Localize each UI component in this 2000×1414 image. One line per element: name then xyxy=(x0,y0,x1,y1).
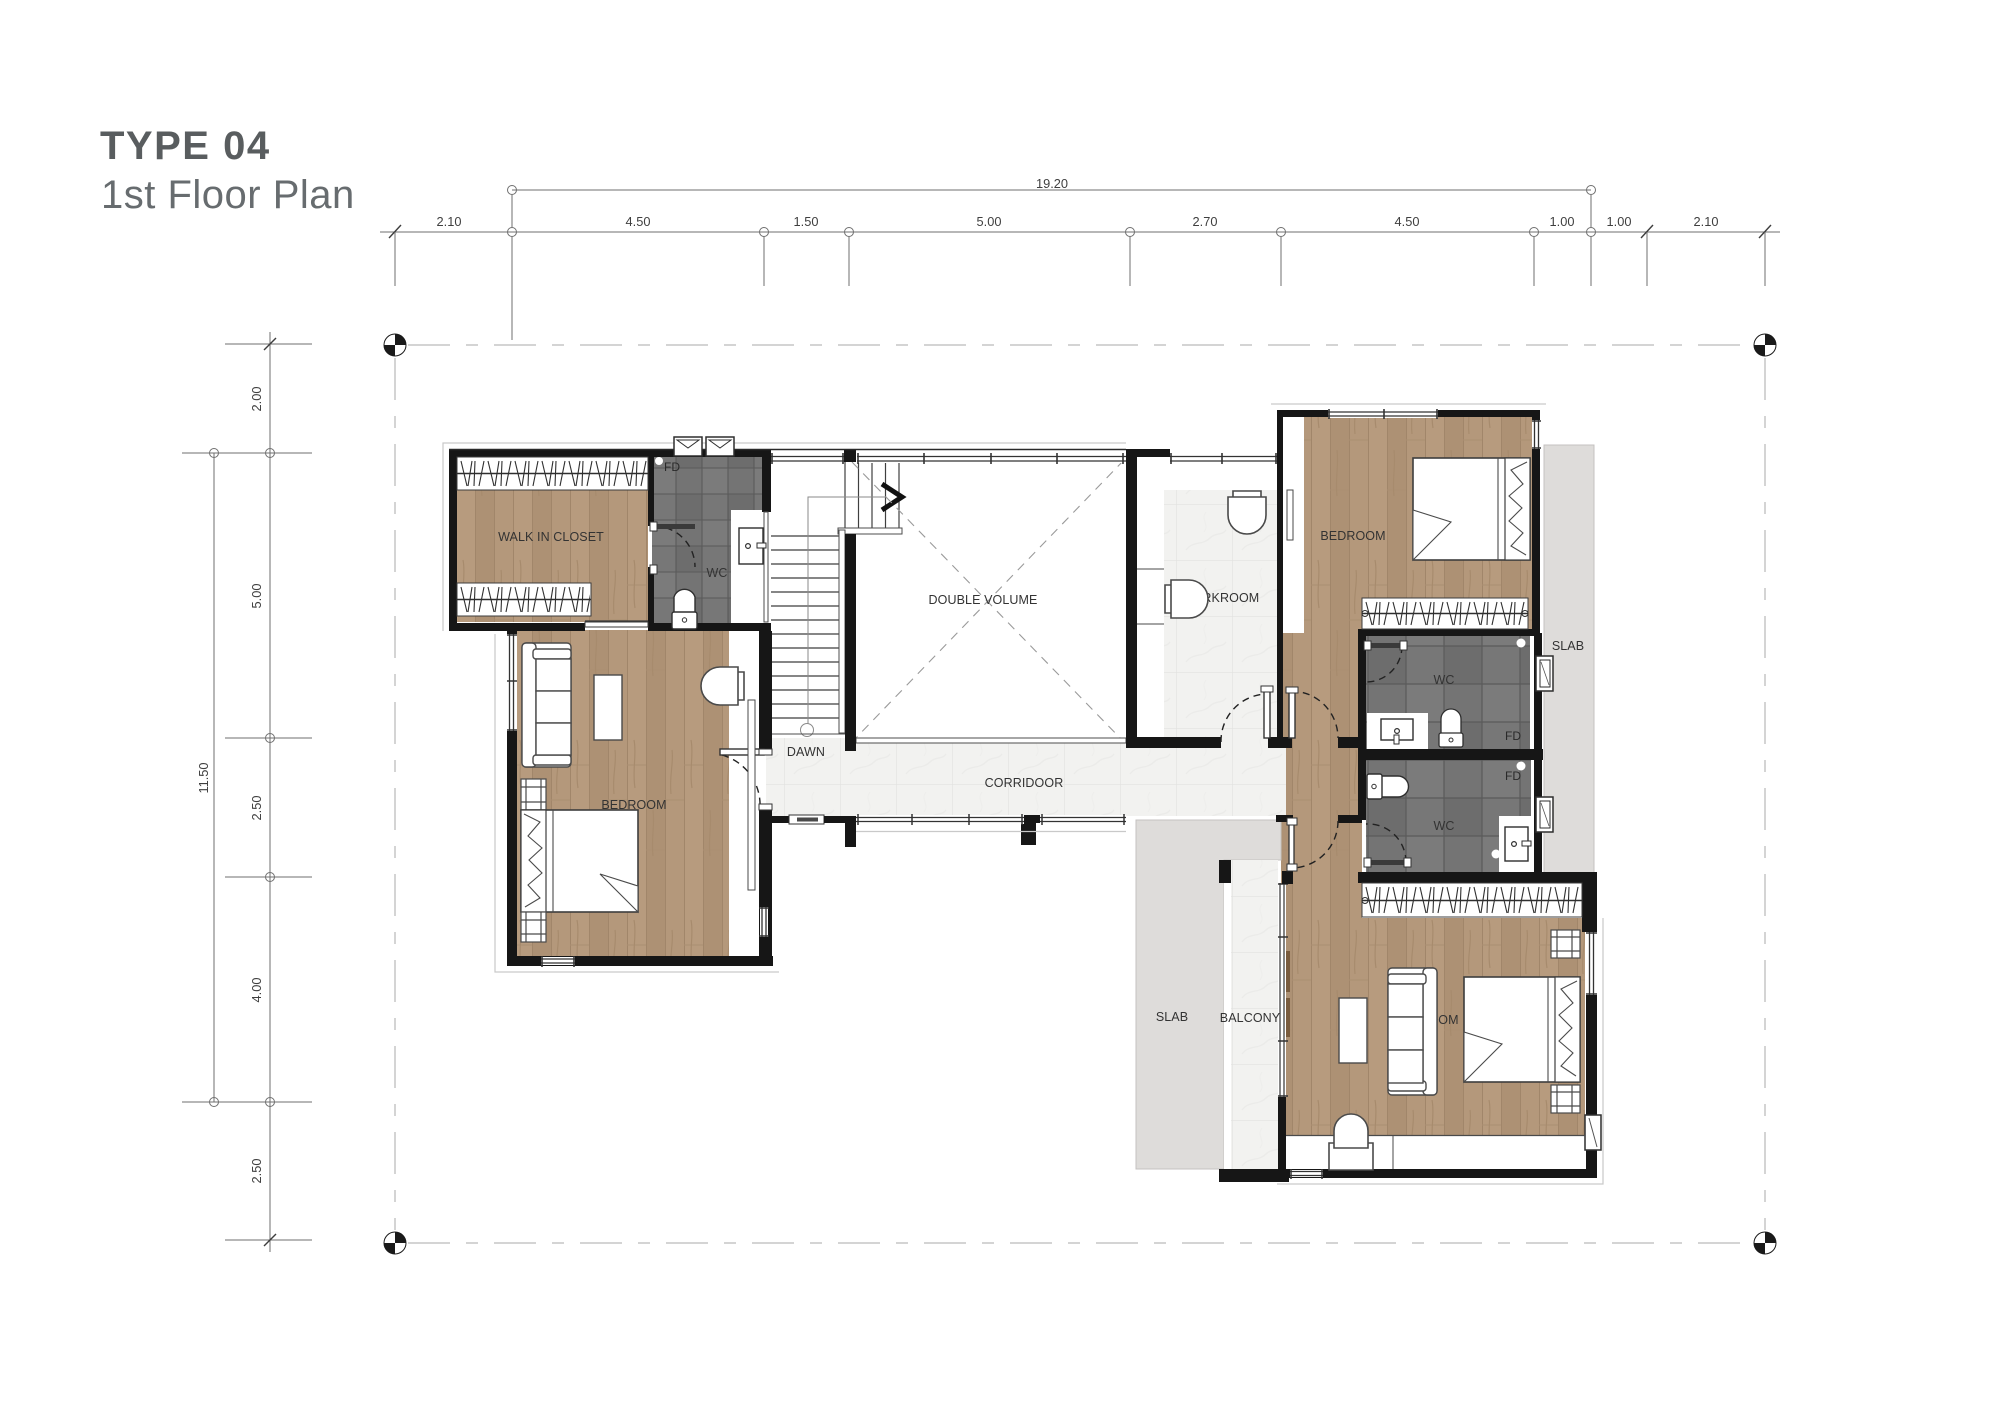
svg-text:2.00: 2.00 xyxy=(249,387,264,412)
svg-text:DAWN: DAWN xyxy=(787,745,825,759)
svg-text:WC: WC xyxy=(1433,819,1454,833)
svg-text:WALK IN CLOSET: WALK IN CLOSET xyxy=(498,530,604,544)
svg-text:2.70: 2.70 xyxy=(1193,214,1218,229)
svg-text:11.50: 11.50 xyxy=(196,762,211,793)
svg-text:BEDROOM: BEDROOM xyxy=(1320,529,1385,543)
svg-text:2.50: 2.50 xyxy=(249,796,264,821)
svg-text:WC: WC xyxy=(706,566,727,580)
svg-text:2.10: 2.10 xyxy=(1694,214,1719,229)
svg-text:FD: FD xyxy=(664,460,680,474)
svg-text:TYPE 04: TYPE 04 xyxy=(100,124,271,168)
svg-text:FD: FD xyxy=(1505,729,1521,743)
svg-text:1.50: 1.50 xyxy=(794,214,819,229)
svg-text:1.00: 1.00 xyxy=(1607,214,1632,229)
svg-text:WC: WC xyxy=(1433,673,1454,687)
svg-text:CORRIDOOR: CORRIDOOR xyxy=(985,776,1064,790)
svg-text:1st Floor Plan: 1st Floor Plan xyxy=(101,173,355,217)
svg-text:1.00: 1.00 xyxy=(1550,214,1575,229)
svg-text:5.00: 5.00 xyxy=(977,214,1002,229)
svg-text:SLAB: SLAB xyxy=(1552,639,1584,653)
svg-text:5.00: 5.00 xyxy=(249,584,264,609)
svg-text:4.00: 4.00 xyxy=(249,978,264,1003)
svg-text:19.20: 19.20 xyxy=(1036,176,1068,191)
svg-text:FD: FD xyxy=(1505,769,1521,783)
svg-text:2.10: 2.10 xyxy=(437,214,462,229)
svg-text:DOUBLE VOLUME: DOUBLE VOLUME xyxy=(929,593,1038,607)
svg-text:4.50: 4.50 xyxy=(626,214,651,229)
svg-text:4.50: 4.50 xyxy=(1395,214,1420,229)
svg-text:SLAB: SLAB xyxy=(1156,1010,1188,1024)
svg-text:BALCONY: BALCONY xyxy=(1220,1011,1281,1025)
svg-text:2.50: 2.50 xyxy=(249,1159,264,1184)
